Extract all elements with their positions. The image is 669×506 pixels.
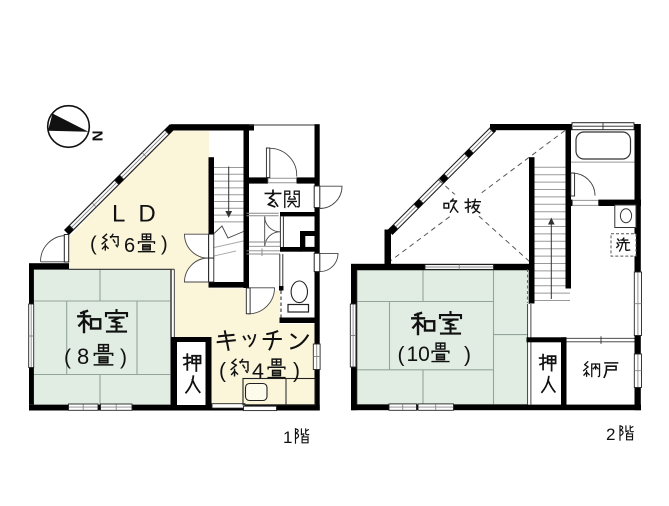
svg-text:(: ( [90,234,97,256]
svg-text:): ) [120,346,127,369]
svg-text:4: 4 [252,359,264,383]
svg-text:6: 6 [124,235,135,257]
svg-text:(: ( [64,346,71,369]
svg-text:2: 2 [606,425,615,444]
svg-text:8: 8 [77,344,89,369]
svg-text:1: 1 [283,428,292,447]
svg-text:LD: LD [112,201,169,228]
svg-text:): ) [293,360,300,383]
svg-text:10: 10 [407,343,430,366]
svg-text:N: N [89,131,106,142]
svg-text:(: ( [219,360,226,383]
svg-text:): ) [464,344,471,367]
svg-text:): ) [161,234,168,256]
svg-text:(: ( [398,344,405,367]
